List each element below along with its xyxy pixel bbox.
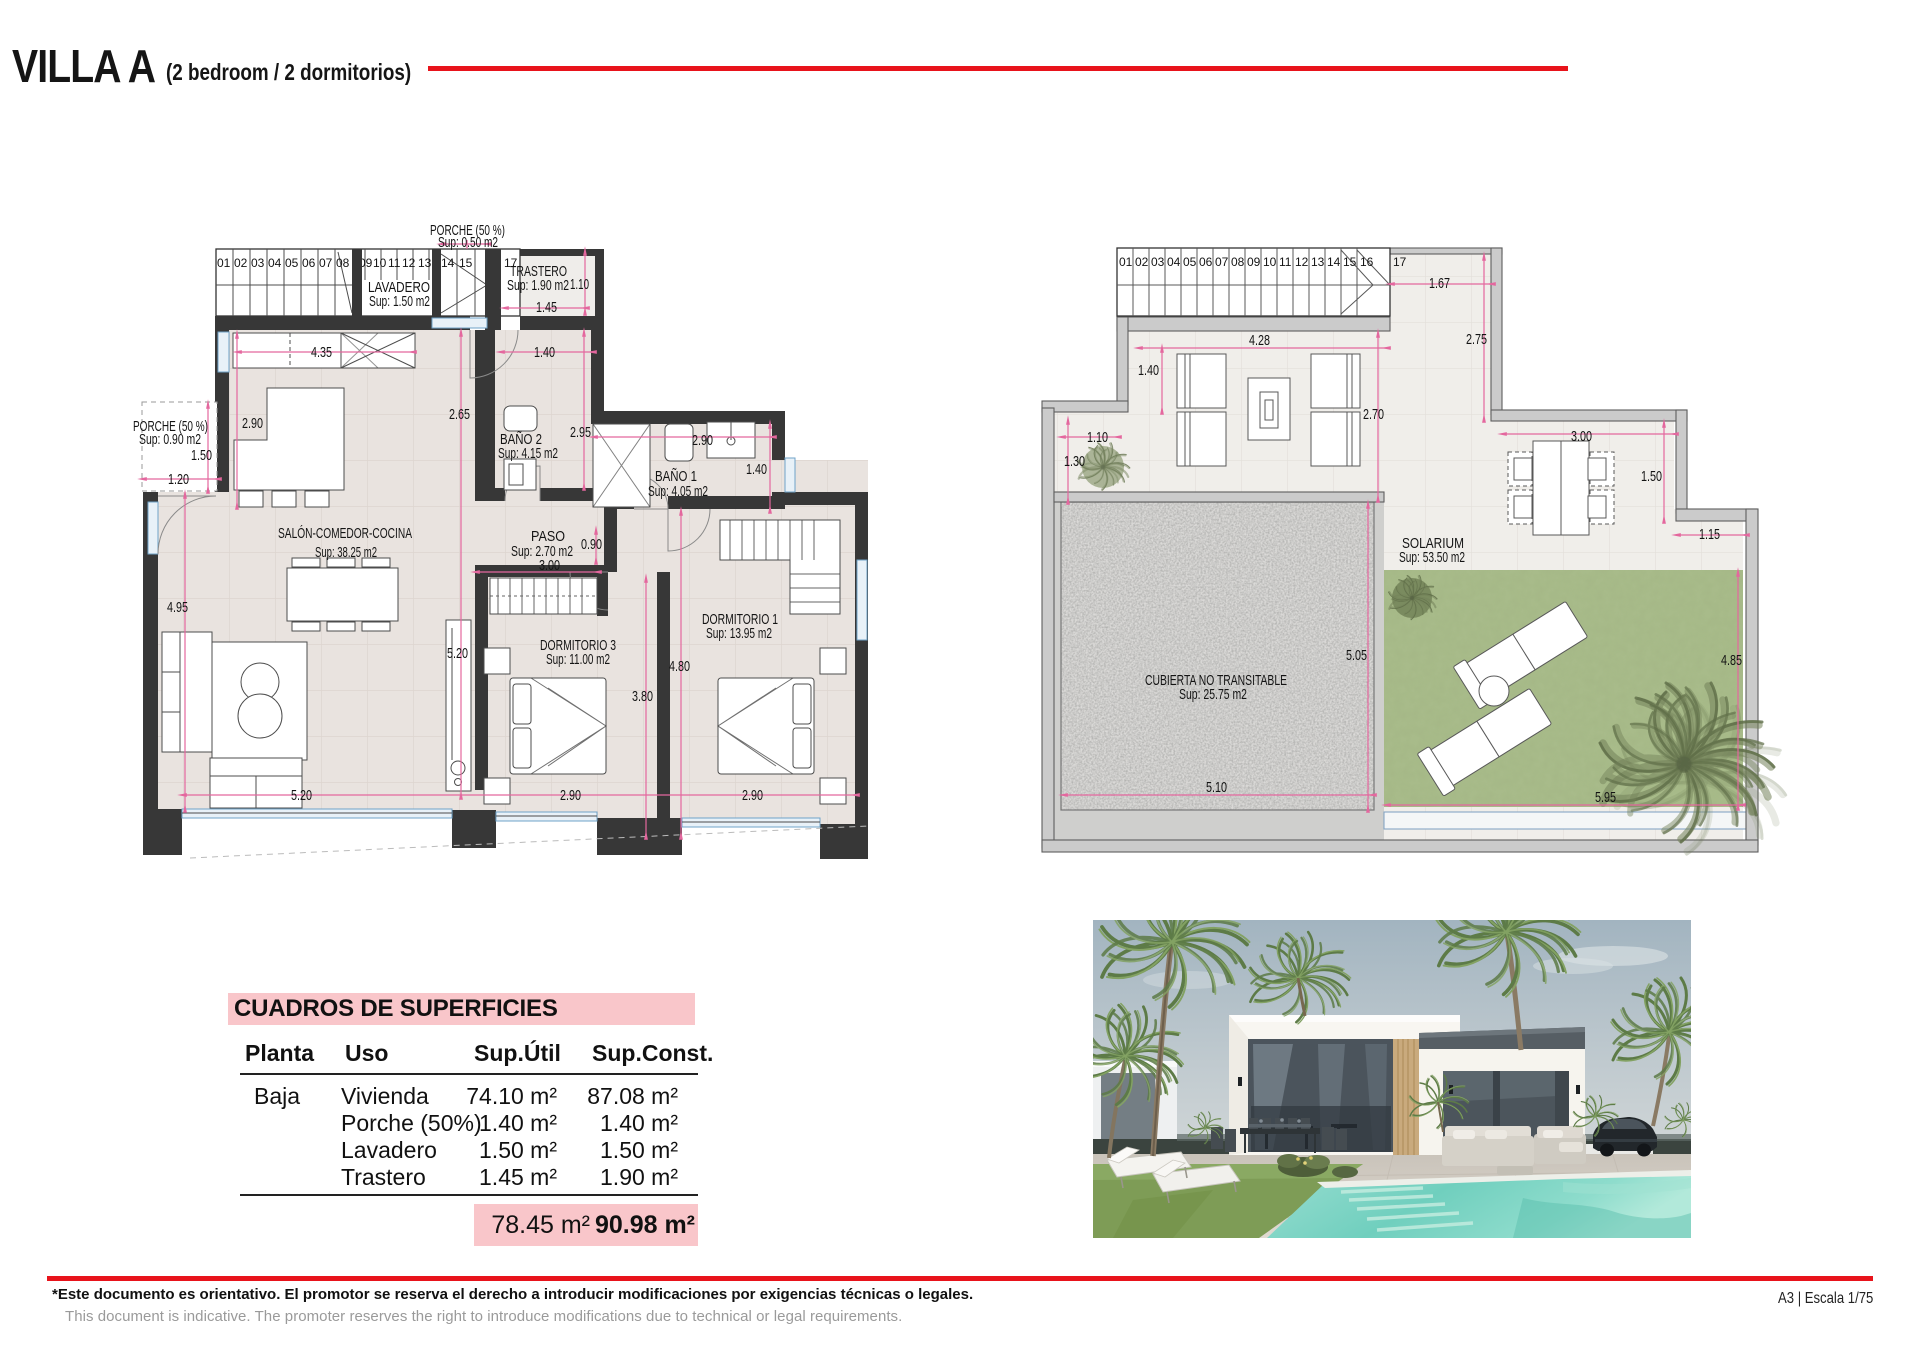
svg-text:4.95: 4.95 [167, 599, 188, 616]
svg-text:3.00: 3.00 [1571, 428, 1592, 445]
svg-text:15: 15 [1343, 255, 1357, 269]
svg-text:1.40: 1.40 [1138, 362, 1159, 379]
svg-text:04: 04 [1167, 255, 1181, 269]
svg-text:04: 04 [268, 256, 282, 270]
svg-text:16: 16 [1360, 255, 1374, 269]
svg-text:1.15: 1.15 [1699, 526, 1720, 543]
svg-text:Sup: 1.90 m2: Sup: 1.90 m2 [507, 278, 569, 294]
svg-text:14: 14 [1327, 255, 1341, 269]
svg-text:5.10: 5.10 [1206, 779, 1227, 796]
svg-text:4.85: 4.85 [1721, 652, 1742, 669]
svg-text:13: 13 [418, 256, 432, 270]
svg-text:5.95: 5.95 [1595, 789, 1616, 806]
svg-text:Sup: 1.50 m2: Sup: 1.50 m2 [369, 294, 430, 310]
svg-text:1.45: 1.45 [536, 299, 557, 316]
svg-text:2.75: 2.75 [1466, 331, 1487, 348]
svg-text:2.70: 2.70 [1363, 406, 1384, 423]
svg-text:Sup: 4.15 m2: Sup: 4.15 m2 [498, 446, 558, 462]
svg-text:08: 08 [1231, 255, 1245, 269]
svg-text:06: 06 [1199, 255, 1213, 269]
svg-text:Sup: 25.75 m2: Sup: 25.75 m2 [1179, 687, 1247, 703]
svg-text:4.35: 4.35 [311, 344, 332, 361]
svg-text:Sup: 13.95 m2: Sup: 13.95 m2 [706, 626, 772, 642]
svg-text:1.30: 1.30 [1064, 453, 1085, 470]
svg-text:5.05: 5.05 [1346, 647, 1367, 664]
svg-text:1.10: 1.10 [570, 276, 589, 293]
svg-text:12: 12 [1295, 255, 1309, 269]
svg-text:5.20: 5.20 [291, 787, 312, 804]
svg-text:Sup: 0.50 m2: Sup: 0.50 m2 [438, 235, 498, 251]
svg-text:10: 10 [373, 256, 387, 270]
svg-text:08: 08 [336, 256, 350, 270]
svg-text:Sup: 0.90 m2: Sup: 0.90 m2 [139, 432, 201, 448]
svg-text:17: 17 [1393, 255, 1407, 269]
svg-text:2.90: 2.90 [692, 432, 713, 449]
svg-text:06: 06 [302, 256, 316, 270]
svg-text:0.90: 0.90 [581, 536, 602, 553]
svg-text:02: 02 [1135, 255, 1149, 269]
svg-text:07: 07 [319, 256, 333, 270]
svg-text:05: 05 [1183, 255, 1197, 269]
svg-text:05: 05 [285, 256, 299, 270]
svg-text:09: 09 [1247, 255, 1261, 269]
svg-text:Sup: 38.25 m2: Sup: 38.25 m2 [315, 545, 377, 561]
svg-text:Sup: 4.05 m2: Sup: 4.05 m2 [648, 484, 708, 500]
svg-text:Sup: 11.00 m2: Sup: 11.00 m2 [546, 652, 610, 668]
svg-text:03: 03 [1151, 255, 1165, 269]
svg-text:3.80: 3.80 [632, 688, 653, 705]
svg-text:2.95: 2.95 [570, 424, 591, 441]
svg-text:2.90: 2.90 [742, 787, 763, 804]
svg-text:12: 12 [402, 256, 416, 270]
svg-text:02: 02 [234, 256, 248, 270]
svg-text:1.50: 1.50 [191, 447, 212, 464]
svg-text:Sup: 53.50 m2: Sup: 53.50 m2 [1399, 550, 1465, 566]
svg-text:2.90: 2.90 [560, 787, 581, 804]
svg-text:07: 07 [1215, 255, 1229, 269]
svg-text:11: 11 [1279, 255, 1292, 269]
svg-text:15: 15 [459, 256, 473, 270]
svg-text:SALÓN-COMEDOR-COCINA: SALÓN-COMEDOR-COCINA [278, 525, 412, 542]
svg-text:2.90: 2.90 [242, 415, 263, 432]
svg-text:14: 14 [441, 256, 455, 270]
svg-text:4.28: 4.28 [1249, 332, 1270, 349]
svg-text:1.10: 1.10 [1087, 429, 1108, 446]
svg-text:BAÑO 1: BAÑO 1 [655, 468, 697, 485]
svg-text:PASO: PASO [531, 529, 565, 545]
svg-text:10: 10 [1263, 255, 1277, 269]
svg-text:1.40: 1.40 [534, 344, 555, 361]
svg-text:Sup: 2.70 m2: Sup: 2.70 m2 [511, 544, 573, 560]
svg-text:4.80: 4.80 [669, 658, 690, 675]
svg-text:1.40: 1.40 [746, 461, 767, 478]
svg-text:5.20: 5.20 [447, 645, 468, 662]
svg-text:13: 13 [1311, 255, 1325, 269]
svg-text:11: 11 [388, 256, 401, 270]
svg-text:03: 03 [251, 256, 265, 270]
svg-text:1.50: 1.50 [1641, 468, 1662, 485]
svg-text:01: 01 [217, 256, 231, 270]
svg-text:1.67: 1.67 [1429, 275, 1450, 292]
svg-text:2.65: 2.65 [449, 406, 470, 423]
svg-text:01: 01 [1119, 255, 1133, 269]
svg-text:1.20: 1.20 [168, 471, 189, 488]
